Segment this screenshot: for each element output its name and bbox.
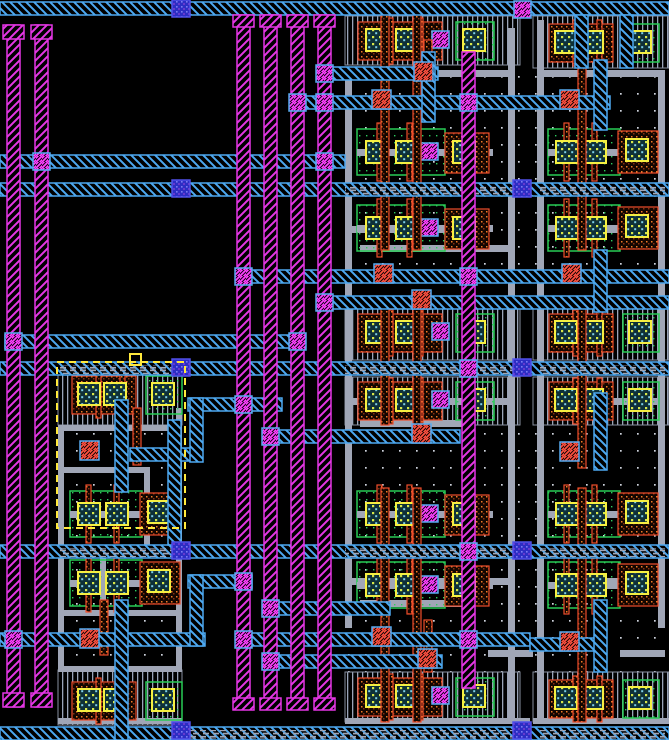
contact-cut[interactable] <box>556 217 578 239</box>
poly-contact[interactable] <box>372 90 391 109</box>
metal2-pad[interactable] <box>314 698 335 710</box>
metal-pin-via[interactable] <box>513 722 531 739</box>
metal2-bus[interactable] <box>7 25 20 707</box>
metal2-pad[interactable] <box>233 698 254 710</box>
via1[interactable] <box>421 143 438 160</box>
via1-cut[interactable] <box>316 153 333 170</box>
via1-cut[interactable] <box>235 268 252 285</box>
contact-cut[interactable] <box>626 572 648 594</box>
li-wire[interactable] <box>620 650 665 657</box>
contact-cut[interactable] <box>78 503 100 525</box>
contact-cut[interactable] <box>556 574 578 596</box>
li-rail-dashes[interactable] <box>345 186 530 195</box>
via1-cut[interactable] <box>316 294 333 311</box>
contact-cut[interactable] <box>152 383 174 405</box>
li-rail-dashes[interactable] <box>170 730 530 739</box>
contact-cut[interactable] <box>78 572 100 594</box>
contact-cut[interactable] <box>106 572 128 594</box>
metal1-segment[interactable] <box>168 420 181 545</box>
li-rail-dashes[interactable] <box>345 365 530 374</box>
metal1-rail[interactable] <box>0 2 669 15</box>
contact-cut[interactable] <box>78 383 100 405</box>
metal1-segment[interactable] <box>575 15 588 68</box>
poly-contact[interactable] <box>414 62 433 81</box>
contact-cut[interactable] <box>556 141 578 163</box>
li-rail-dashes[interactable] <box>540 365 665 374</box>
contact-cut[interactable] <box>152 689 174 711</box>
poly-contact[interactable] <box>560 90 579 109</box>
poly-contact[interactable] <box>562 264 581 283</box>
metal-pin-via[interactable] <box>513 180 531 197</box>
poly-contact[interactable] <box>560 632 579 651</box>
li-wire[interactable] <box>345 718 530 724</box>
via1-cut[interactable] <box>460 268 477 285</box>
poly-route[interactable] <box>578 488 586 722</box>
contact-cut[interactable] <box>584 503 606 525</box>
contact-cut[interactable] <box>629 389 651 411</box>
via1-cut[interactable] <box>289 94 306 111</box>
via1[interactable] <box>432 391 449 408</box>
via1-cut[interactable] <box>514 1 531 18</box>
metal1-segment[interactable] <box>190 575 203 646</box>
via1-cut[interactable] <box>262 428 279 445</box>
metal-pin-via[interactable] <box>172 722 190 739</box>
contact-cut[interactable] <box>584 141 606 163</box>
metal2-bus[interactable] <box>318 15 331 705</box>
via1-cut[interactable] <box>316 65 333 82</box>
metal1-segment[interactable] <box>594 393 607 470</box>
metal-pin-via[interactable] <box>172 542 190 559</box>
contact-cut[interactable] <box>626 501 648 523</box>
metal-pin-via[interactable] <box>172 0 190 17</box>
via1-cut[interactable] <box>262 653 279 670</box>
layout-canvas[interactable] <box>0 0 669 740</box>
via1-cut[interactable] <box>5 631 22 648</box>
contact-cut[interactable] <box>626 139 648 161</box>
metal2-pad[interactable] <box>31 25 52 39</box>
metal2-pad[interactable] <box>233 15 254 27</box>
metal1-segment[interactable] <box>115 400 128 492</box>
metal1-rail[interactable] <box>5 335 305 348</box>
li-rail-dashes[interactable] <box>540 186 665 195</box>
contact-cut[interactable] <box>584 574 606 596</box>
contact-cut[interactable] <box>626 215 648 237</box>
contact-cut[interactable] <box>555 31 577 53</box>
metal2-bus[interactable] <box>237 15 250 705</box>
poly-contact[interactable] <box>418 649 437 668</box>
poly-contact[interactable] <box>374 264 393 283</box>
via1-cut[interactable] <box>262 600 279 617</box>
metal2-pad[interactable] <box>260 698 281 710</box>
poly-contact[interactable] <box>412 290 431 309</box>
poly-contact[interactable] <box>80 629 99 648</box>
contact-cut[interactable] <box>106 503 128 525</box>
metal1-segment[interactable] <box>620 15 633 68</box>
metal1-rail[interactable] <box>318 296 669 309</box>
contact-cut[interactable] <box>629 321 651 343</box>
via1[interactable] <box>432 31 449 48</box>
metal2-pad[interactable] <box>31 693 52 707</box>
li-wire[interactable] <box>62 467 150 473</box>
metal1-segment[interactable] <box>115 600 128 740</box>
contact-cut[interactable] <box>556 503 578 525</box>
via1-cut[interactable] <box>460 94 477 111</box>
metal-pin-via[interactable] <box>513 542 531 559</box>
metal2-bus[interactable] <box>291 15 304 705</box>
metal2-pad[interactable] <box>260 15 281 27</box>
via1-cut[interactable] <box>5 333 22 350</box>
metal1-segment[interactable] <box>594 600 607 672</box>
contact-cut[interactable] <box>148 501 170 523</box>
li-rail-dashes[interactable] <box>540 548 665 557</box>
via1[interactable] <box>432 323 449 340</box>
poly-route[interactable] <box>381 15 389 250</box>
contact-cut[interactable] <box>629 687 651 709</box>
metal2-bus[interactable] <box>35 25 48 707</box>
metal1-segment[interactable] <box>190 398 203 462</box>
via1[interactable] <box>421 576 438 593</box>
metal2-pad[interactable] <box>3 25 24 39</box>
metal-pin-via[interactable] <box>172 180 190 197</box>
poly-contact[interactable] <box>80 441 99 460</box>
via1-cut[interactable] <box>460 631 477 648</box>
poly-contact[interactable] <box>560 442 579 461</box>
via1-cut[interactable] <box>235 396 252 413</box>
li-wire[interactable] <box>488 650 533 657</box>
via1-cut[interactable] <box>289 333 306 350</box>
metal2-pad[interactable] <box>3 693 24 707</box>
via1-cut[interactable] <box>460 360 477 377</box>
via1-cut[interactable] <box>460 543 477 560</box>
contact-cut[interactable] <box>148 570 170 592</box>
li-rail-dashes[interactable] <box>345 548 530 557</box>
li-rail-dashes[interactable] <box>60 365 182 374</box>
contact-cut[interactable] <box>555 321 577 343</box>
metal2-pad[interactable] <box>314 15 335 27</box>
metal1-segment[interactable] <box>594 250 607 312</box>
via1[interactable] <box>421 219 438 236</box>
poly-contact[interactable] <box>372 627 391 646</box>
li-rail-dashes[interactable] <box>60 548 182 557</box>
metal2-pad[interactable] <box>287 698 308 710</box>
contact-cut[interactable] <box>555 687 577 709</box>
poly-contact[interactable] <box>412 424 431 443</box>
via1-cut[interactable] <box>235 631 252 648</box>
metal1-rail[interactable] <box>0 633 205 646</box>
contact-cut[interactable] <box>584 217 606 239</box>
li-rail-dashes[interactable] <box>540 730 665 739</box>
layout-viewer <box>0 0 669 740</box>
poly-route[interactable] <box>413 488 421 722</box>
via1[interactable] <box>432 687 449 704</box>
metal2-pad[interactable] <box>287 15 308 27</box>
metal1-segment[interactable] <box>594 60 607 130</box>
via1-cut[interactable] <box>235 573 252 590</box>
via1-cut[interactable] <box>33 153 50 170</box>
via1-cut[interactable] <box>316 94 333 111</box>
poly-route[interactable] <box>413 15 421 250</box>
contact-cut[interactable] <box>555 389 577 411</box>
metal-pin-via[interactable] <box>513 359 531 376</box>
contact-cut[interactable] <box>463 29 485 51</box>
contact-cut[interactable] <box>78 689 100 711</box>
via1[interactable] <box>421 505 438 522</box>
